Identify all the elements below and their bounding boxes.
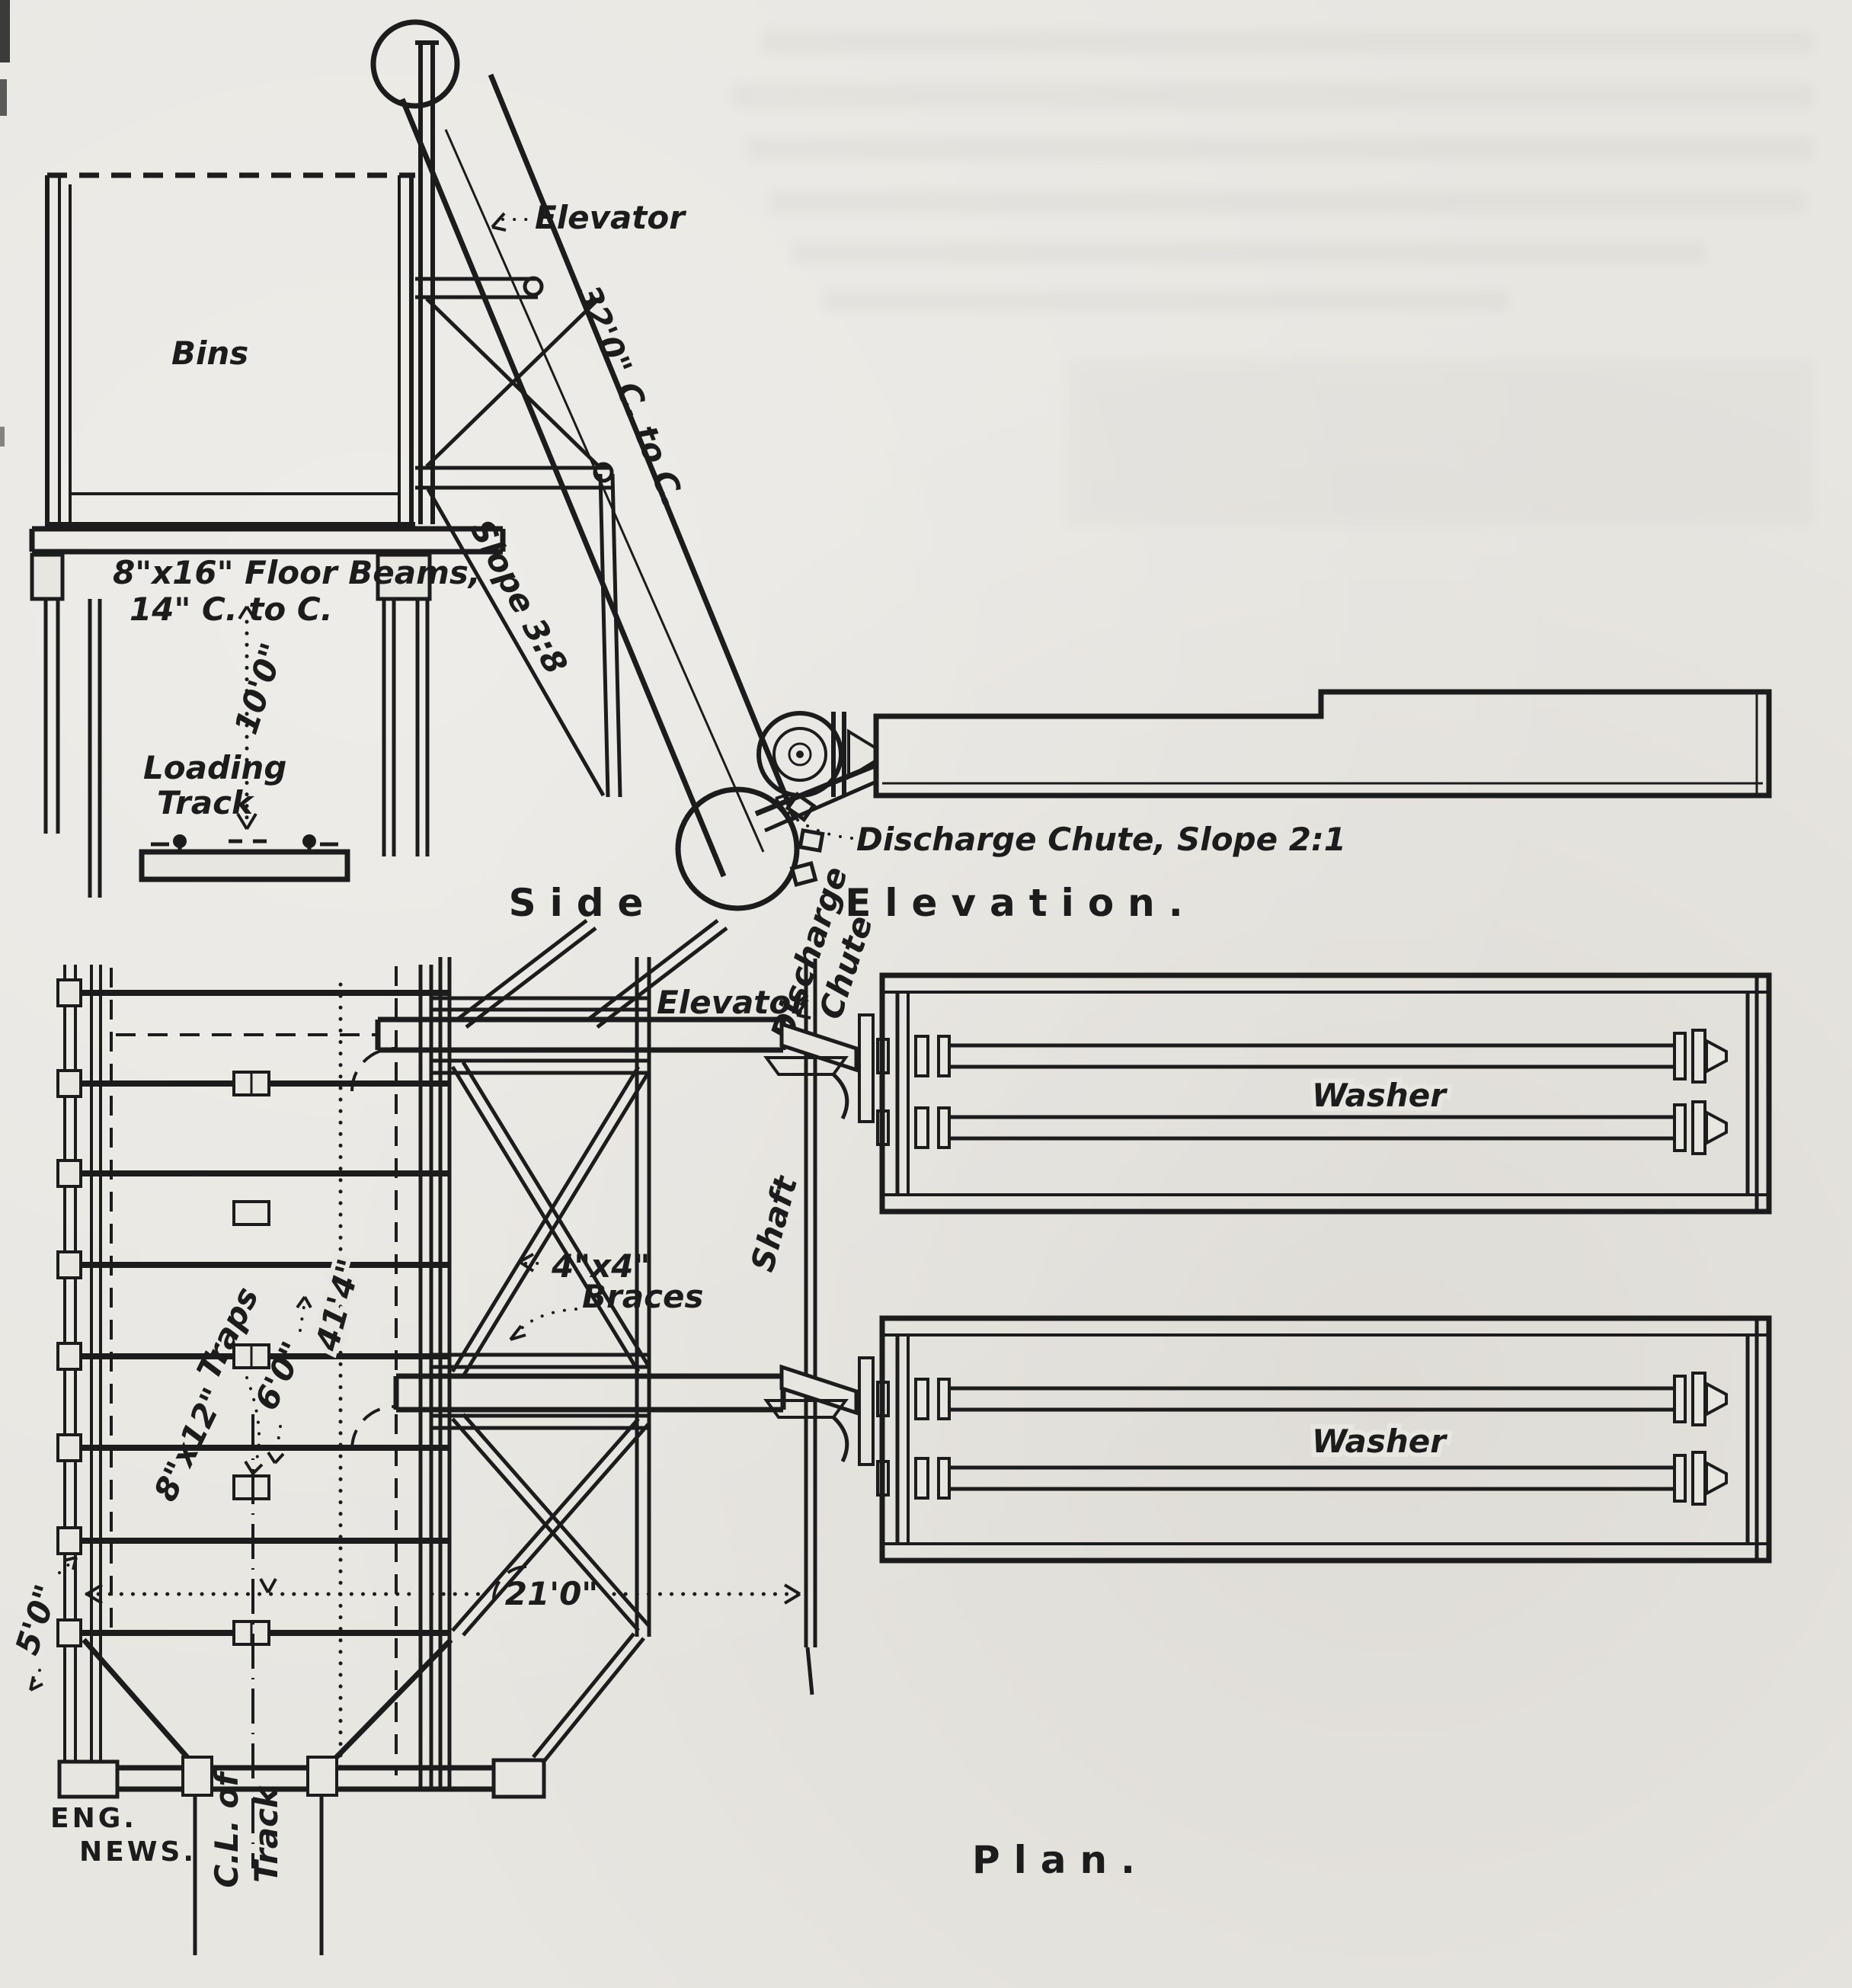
shaft-offset-dimension: 21'0" [87, 1575, 800, 1612]
bin-bottom-hopper [59, 1414, 544, 1955]
inclined-elevator [402, 75, 795, 876]
plan-caption: Plan. [972, 1838, 1149, 1882]
washer-plan-lower: Washer [882, 1318, 1769, 1561]
svg-text:Track: Track [157, 784, 255, 821]
washer-side-elevation [876, 692, 1769, 796]
traps-note: 8"x12" Traps [146, 1281, 266, 1506]
shaft-label: Shaft [744, 1171, 805, 1276]
loading-track: Loading Track [142, 749, 347, 879]
source-credit: ENG. NEWS. [50, 1803, 197, 1868]
svg-text:ENG.: ENG. [50, 1803, 137, 1834]
bin-length-dimension: 41'4" [308, 1255, 368, 1356]
bevel-gear-drive-upper [766, 1015, 888, 1144]
bevel-gear-drive-lower [766, 1358, 888, 1495]
svg-text:Track: Track [248, 1785, 285, 1883]
svg-text:C.L. of: C.L. of [208, 1769, 245, 1888]
bins-structure: Bins [47, 175, 415, 529]
svg-text:Side: Side [509, 881, 657, 925]
svg-text:NEWS.: NEWS. [79, 1836, 197, 1868]
svg-text:Elevation.: Elevation. [845, 881, 1197, 925]
plant-drawing-canvas: Bins [0, 0, 1852, 1988]
svg-text:Braces: Braces [582, 1278, 703, 1315]
discharge-chute-note: Discharge Chute, Slope 2:1 [776, 794, 1346, 858]
svg-text:Elevator: Elevator [535, 199, 686, 236]
clearance-dim-text: 10'0" [227, 639, 291, 739]
braces-note: 4"x4" Braces [510, 1247, 703, 1340]
washer-upper-label: Washer [1312, 1077, 1447, 1114]
svg-text:Traps: Traps [190, 1281, 266, 1385]
washer-drive-pulley [759, 712, 876, 797]
elevator-boot-wheel [678, 789, 823, 908]
plan-view: C.L. of Track 5'0" 8"x12" Traps [8, 862, 1769, 1955]
elevator-length-dim: 32'0" C. to C. [570, 280, 693, 512]
side-elevation-view: Bins [32, 22, 1769, 925]
elevator-side-label: Elevator [492, 199, 686, 236]
svg-text:14" C. to C.: 14" C. to C. [130, 591, 333, 628]
floor-beams-note: 8"x16" Floor Beams, 14" C. to C. [113, 554, 481, 628]
svg-text:Discharge Chute, Slope 2:1: Discharge Chute, Slope 2:1 [856, 821, 1346, 858]
elevator-slope-note: Slope 3:8 [462, 514, 574, 680]
svg-text:Loading: Loading [143, 749, 286, 786]
scanned-engineering-drawing: Bins [0, 0, 1852, 1988]
trap-spacing-dimension: 6'0" [248, 1297, 312, 1463]
svg-text:8"x16" Floor Beams,: 8"x16" Floor Beams, [113, 554, 481, 591]
svg-text:21'0": 21'0" [505, 1575, 598, 1612]
bins-label: Bins [171, 335, 248, 372]
washer-plan-upper: Washer [882, 975, 1769, 1212]
line-shaft: Shaft [744, 959, 815, 1695]
beam-end-blocks [58, 980, 81, 1646]
scan-edge-artifacts [0, 0, 10, 447]
washer-lower-label: Washer [1312, 1423, 1447, 1460]
svg-text:8"x12": 8"x12" [146, 1382, 233, 1507]
